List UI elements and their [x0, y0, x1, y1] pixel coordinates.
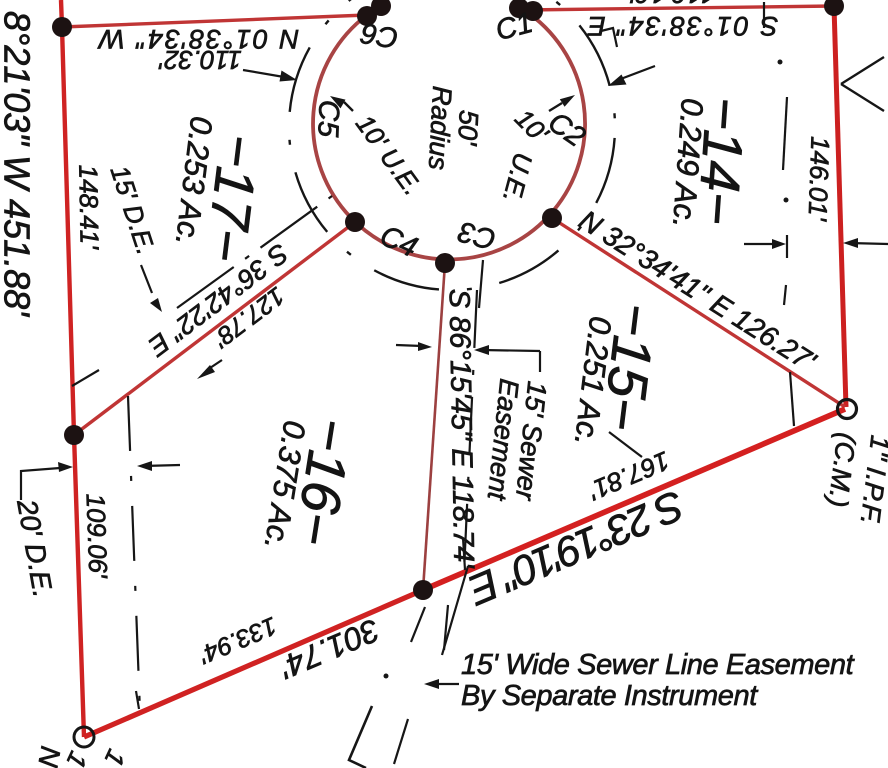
- svg-text:C6: C6: [358, 16, 401, 54]
- svg-text:S 01°38'34" E: S 01°38'34" E: [586, 11, 779, 41]
- svg-text:109.06': 109.06': [81, 493, 114, 580]
- svg-text:8°21'03" W 451.88': 8°21'03" W 451.88': [0, 11, 38, 317]
- svg-text:50': 50': [452, 109, 484, 147]
- svg-text:C5: C5: [311, 99, 344, 138]
- svg-text:148.41': 148.41': [73, 164, 104, 250]
- svg-text:146.01': 146.01': [802, 136, 835, 223]
- svg-text:Radius: Radius: [423, 85, 457, 171]
- svg-text:110.32': 110.32': [158, 45, 242, 75]
- svg-text:By Separate Instrument: By Separate Instrument: [461, 680, 759, 712]
- svg-text:15' Wide Sewer Line Easement: 15' Wide Sewer Line Easement: [461, 649, 856, 681]
- svg-text:N: N: [32, 744, 66, 768]
- svg-text:110.16': 110.16': [630, 0, 714, 9]
- svg-text:S 86°15'45" E 118.74': S 86°15'45" E 118.74': [443, 288, 480, 569]
